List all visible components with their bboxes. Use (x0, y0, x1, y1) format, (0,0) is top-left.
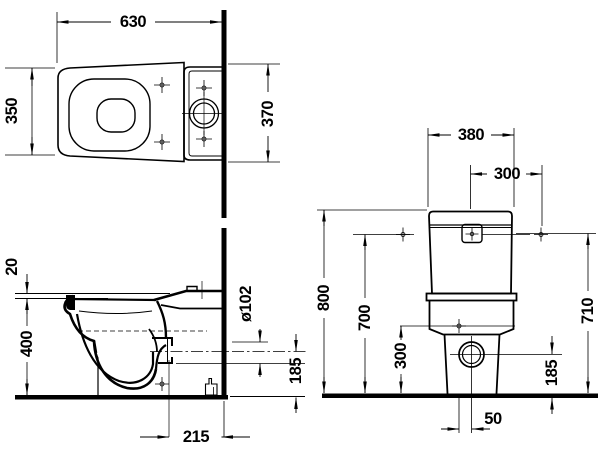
cistern-ledge (427, 294, 517, 301)
floor-fixing-cross (155, 377, 169, 391)
dim-overall-length-label: 630 (120, 13, 147, 31)
wall-section-top (222, 10, 227, 218)
supply-cross-right (534, 228, 548, 242)
seat-ring (79, 311, 152, 314)
side-view: 20 400 ø102 185 215 (3, 228, 308, 446)
technical-drawing-page: 630 350 370 (0, 0, 600, 450)
dim-cistern-width-rear-label: 380 (458, 126, 485, 144)
rim-top (70, 299, 156, 300)
dim-outlet-height-rear-label: 185 (543, 360, 561, 387)
cistern-cross-top (196, 80, 212, 96)
dim-cistern-width-label: 370 (259, 101, 277, 128)
seat-outline (69, 79, 150, 151)
dim-seat-thickness-label: 20 (3, 258, 21, 276)
dim-supply-offset-label: 300 (494, 165, 521, 183)
dim-bowl-width-label: 350 (3, 98, 21, 125)
platform-underside (161, 305, 222, 309)
dim-fixing-height-label: 300 (392, 343, 410, 370)
technical-drawing: 630 350 370 (0, 0, 600, 450)
flush-platform (154, 291, 222, 300)
floor-line-side (15, 395, 228, 400)
weir-line (149, 329, 157, 352)
bowl-rear-body (430, 301, 514, 335)
dim-outlet-height-side-label: 185 (287, 358, 305, 385)
bowl-outline (58, 63, 184, 162)
lever-cross (466, 228, 479, 241)
dim-supply-height-left-label: 700 (356, 305, 374, 332)
dim-outlet-offset-label: 50 (484, 410, 502, 428)
fixing-bracket-icon (206, 379, 218, 396)
dim-outlet-diameter-label: ø102 (237, 286, 255, 322)
dim-bowl-height-label: 400 (18, 331, 36, 358)
hinge-cross-top (154, 77, 170, 93)
bowl-opening (97, 99, 135, 132)
rear-view: 380 300 800 700 710 300 185 50 (315, 126, 598, 433)
cistern-cross-bottom (196, 131, 212, 147)
top-view: 630 350 370 (3, 10, 280, 218)
fixing-cross-rear (452, 319, 466, 333)
dim-outlet-wall-distance-label: 215 (183, 428, 210, 446)
wall-section-side (222, 228, 227, 400)
dim-supply-height-right-label: 710 (579, 298, 597, 325)
bowl-interior (77, 314, 153, 383)
hinge-cross-bottom (154, 134, 170, 150)
dim-overall-height-label: 800 (315, 285, 333, 312)
floor-line-rear (322, 394, 598, 399)
